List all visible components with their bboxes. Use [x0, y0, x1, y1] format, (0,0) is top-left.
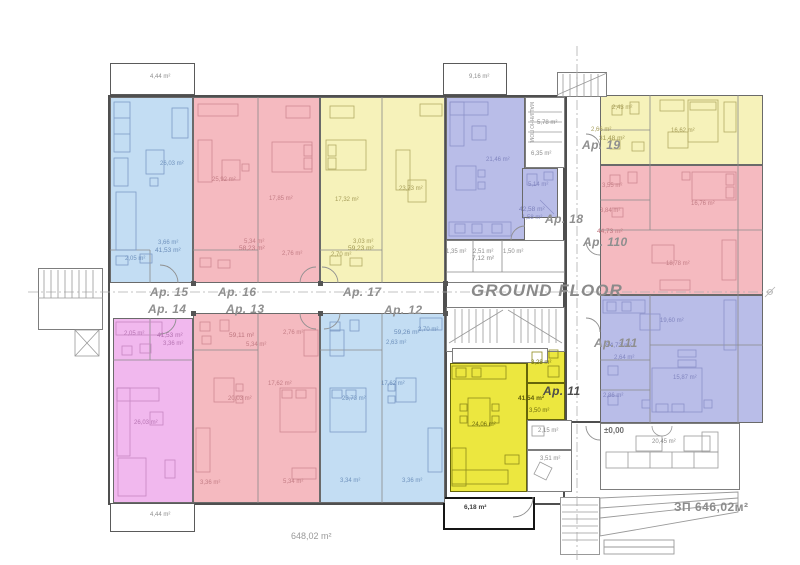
area-label: 17,85 m² — [269, 196, 293, 202]
area-label: 42,58 m² — [519, 207, 545, 214]
area-label: 1,50 m² — [503, 249, 523, 255]
area-label: 6,35 m² — [531, 151, 551, 157]
area-label: 26,03 m² — [134, 420, 158, 426]
entry-bridge-top — [557, 72, 607, 97]
entrance-porch — [443, 497, 535, 530]
label-ap11: Ap. 11 — [543, 384, 581, 398]
area-label: 2,86 m² — [603, 393, 623, 399]
vestibule — [446, 240, 565, 283]
area-label: 2,05 m² — [125, 256, 145, 262]
label-ap17: Ap. 17 — [343, 285, 381, 299]
built-up-area-label: ЗП 646,02м² — [674, 500, 749, 514]
label-ap14: Ap. 14 — [148, 302, 186, 316]
floor-area-label: 648,02 m² — [291, 531, 332, 541]
area-label: 41,53 m² — [157, 333, 183, 340]
area-label: 26,03 m² — [160, 161, 184, 167]
area-label: 5,78 m² — [537, 120, 557, 126]
area-label: 2,76 m² — [283, 330, 303, 336]
area-label: 2,43 m² — [612, 105, 632, 111]
area-label: 59,11 m² — [229, 333, 254, 340]
area-label: 2,64 m² — [614, 355, 634, 361]
area-label: 3,36 m² — [163, 341, 183, 347]
area-label: 18,78 m² — [666, 261, 690, 267]
area-label: 24,06 m² — [472, 422, 496, 428]
area-label: 41,54 m² — [518, 396, 544, 403]
area-label: 2,66 m² — [591, 127, 611, 133]
label-ap19: Ap. 19 — [582, 138, 620, 152]
area-label: 1,35 m² — [446, 249, 466, 255]
area-label: 3,28 m² — [531, 360, 551, 366]
unit-ap18-living — [446, 97, 525, 240]
label-ap18: Ap. 18 — [545, 212, 583, 226]
area-label: 17,62 m² — [268, 381, 292, 387]
exterior-stair-right — [560, 497, 600, 555]
area-label: 15,87 m² — [673, 375, 697, 381]
area-label: 5,34 m² — [283, 479, 303, 485]
area-label: 41,53 m² — [155, 248, 181, 255]
area-label: 17,32 m² — [335, 197, 359, 203]
area-label: 19,60 m² — [660, 318, 684, 324]
unit-ap15 — [110, 97, 193, 283]
unit-ap110 — [600, 165, 763, 295]
area-label: 3,51 m² — [540, 456, 560, 462]
area-label: 9,16 m² — [469, 74, 489, 80]
area-label: 3,36 m² — [402, 478, 422, 484]
area-label: 7,12 m² — [472, 256, 494, 263]
area-label: 58,23 m² — [239, 246, 265, 253]
stairwell — [446, 307, 565, 352]
area-label: 59,23 m² — [348, 246, 374, 253]
area-label: 6,18 m² — [464, 505, 486, 512]
area-label: 2,63 m² — [386, 340, 406, 346]
storage-room-1 — [527, 420, 572, 450]
area-label: 3,84 m² — [600, 208, 620, 214]
area-label: 23,73 m² — [342, 396, 366, 402]
area-label: 3,34 m² — [340, 478, 360, 484]
area-label: 5,14 m² — [528, 182, 548, 188]
area-label: 1,58 m² — [522, 215, 542, 221]
area-label: 2,05 m² — [124, 331, 144, 337]
area-label: 2,70 m² — [331, 252, 351, 258]
area-label: 2,76 m² — [282, 251, 302, 257]
machine-room-label: МАШИННО ПОМ. — [528, 102, 534, 143]
area-label: 20,45 m² — [652, 439, 676, 445]
label-ap16: Ap. 16 — [218, 285, 256, 299]
area-label: 2,15 m² — [538, 428, 558, 434]
label-ap12: Ap. 12 — [384, 303, 422, 317]
label-ap15: Ap. 15 — [150, 285, 188, 299]
unit-ap12 — [320, 313, 445, 503]
area-label: 20,03 m² — [228, 396, 252, 402]
area-label: 4,44 m² — [150, 74, 170, 80]
label-ap111: Ap. 111 — [594, 336, 638, 350]
area-label: 16,76 m² — [691, 201, 715, 207]
area-label: 23,73 m² — [399, 186, 423, 192]
floor-plan: Ap. 15 Ap. 16 Ap. 17 Ap. 14 Ap. 13 Ap. 1… — [0, 0, 800, 565]
exterior-stair-left — [38, 268, 103, 330]
area-label: 59,26 m² — [394, 330, 420, 337]
area-label: 4,44 m² — [150, 512, 170, 518]
area-label: 3,36 m² — [200, 480, 220, 486]
area-label: 16,62 m² — [671, 128, 695, 134]
label-ap110: Ap. 110 — [583, 235, 628, 249]
page-title: GROUND FLOOR — [471, 281, 623, 301]
area-label: 3,55 m² — [602, 183, 622, 189]
area-label: 2,70 m² — [418, 327, 438, 333]
area-label: 5,34 m² — [246, 342, 266, 348]
area-label: 21,46 m² — [486, 157, 510, 163]
level-mark-label: ±0,00 — [604, 426, 624, 435]
area-label: 3,66 m² — [158, 240, 178, 246]
area-label: 17,62 m² — [381, 381, 405, 387]
area-label: 3,50 m² — [529, 408, 549, 414]
area-label: 25,92 m² — [212, 177, 236, 183]
label-ap13: Ap. 13 — [226, 302, 264, 316]
